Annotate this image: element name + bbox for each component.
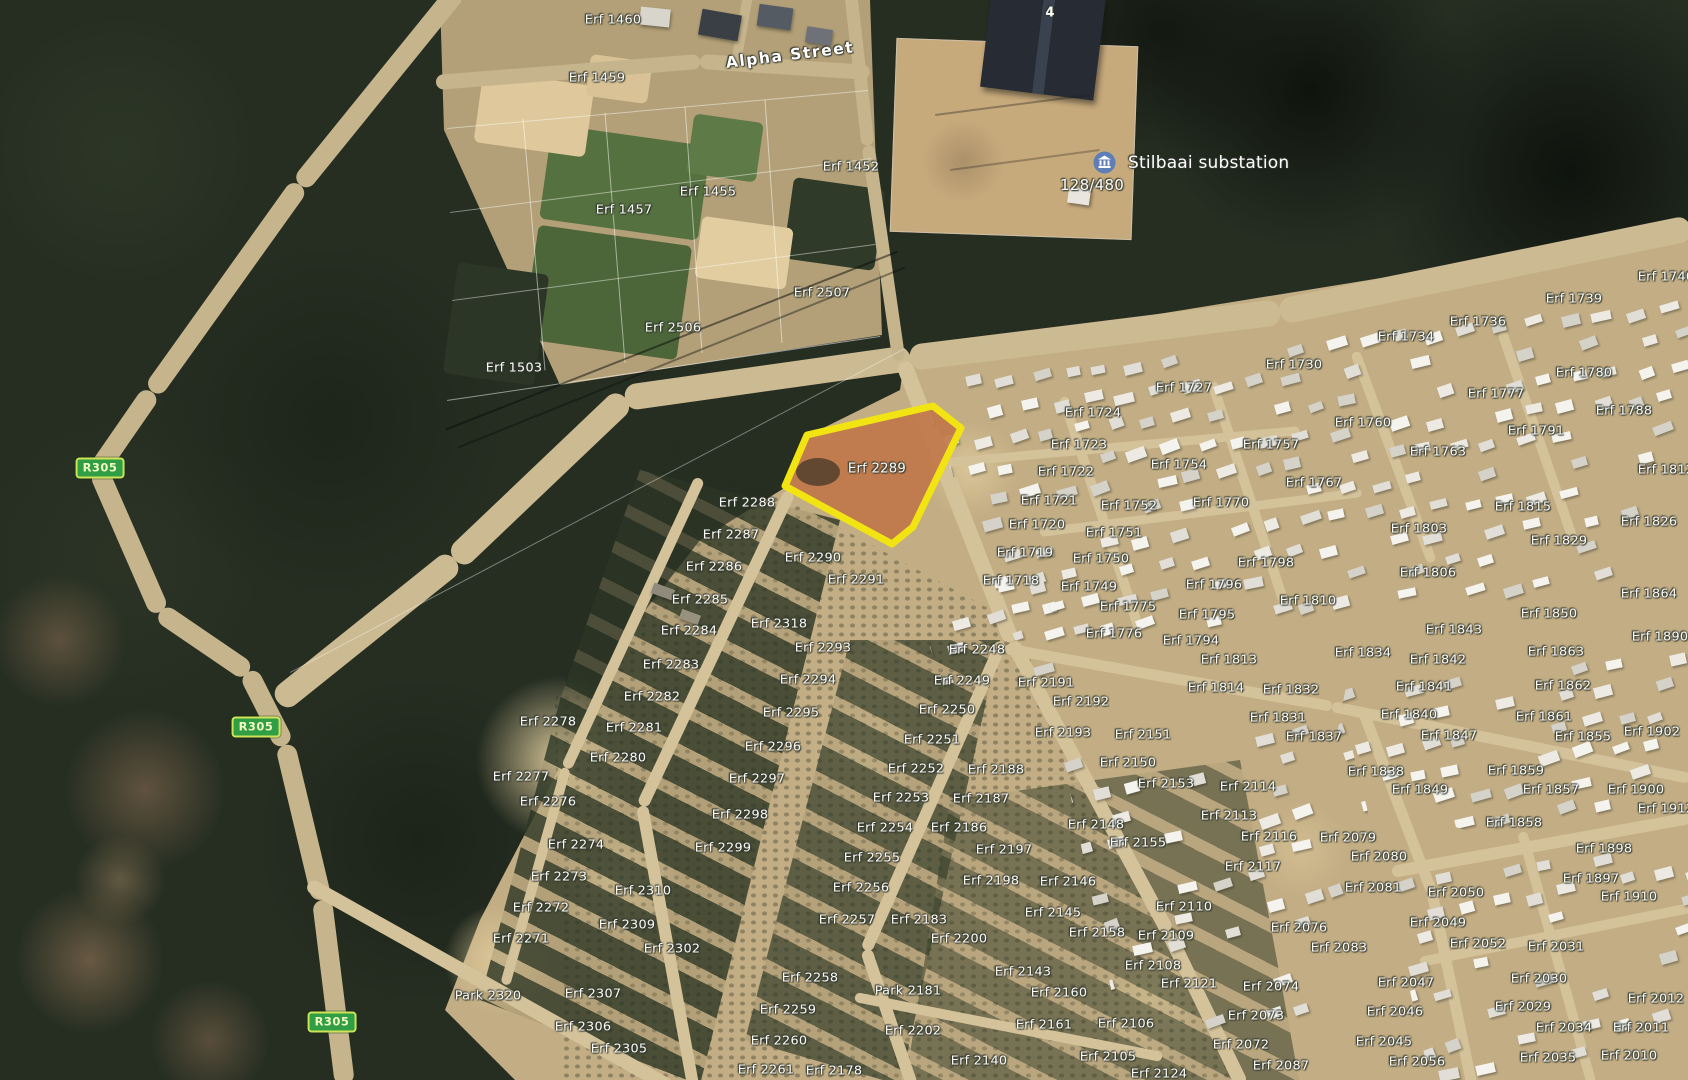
house-roof: [1584, 516, 1599, 528]
house-roof: [1123, 362, 1143, 376]
house-roof: [1676, 922, 1688, 935]
house-roof: [1372, 481, 1392, 494]
house-roof: [952, 617, 971, 631]
house-roof: [1274, 401, 1291, 414]
house-roof: [1465, 583, 1486, 597]
erf-label: Erf 2155: [1110, 836, 1167, 851]
house-roof: [1139, 417, 1155, 430]
erf-label: Erf 2161: [1016, 1018, 1073, 1033]
house-roof: [986, 609, 1005, 624]
erf-label: Erf 2187: [953, 792, 1010, 807]
erf-label: Erf 1826: [1621, 515, 1678, 530]
house-roof: [1476, 1062, 1497, 1076]
house-roof: [1049, 600, 1064, 612]
park-label: Park 2320: [455, 989, 522, 1004]
erf-label: Erf 2299: [695, 841, 752, 856]
erf-label: Erf 1829: [1531, 534, 1588, 549]
house-roof: [1318, 545, 1337, 559]
erf-label: Erf 2150: [1100, 756, 1157, 771]
erf-label: Erf 2050: [1428, 886, 1485, 901]
house-roof: [1652, 421, 1674, 437]
erf-label: Erf 2253: [873, 791, 930, 806]
house-roof: [1158, 557, 1174, 570]
erf-label: Erf 1847: [1421, 729, 1478, 744]
erf-label: Erf 2284: [661, 624, 718, 639]
house-roof: [997, 464, 1013, 476]
erf-label: Erf 2249: [934, 674, 991, 689]
house-roof: [1225, 927, 1241, 939]
house-roof: [1326, 336, 1348, 351]
satellite-map[interactable]: Alpha Street 4 Stilbaai substation 128/4…: [0, 0, 1688, 1080]
erf-label: Erf 2251: [904, 733, 961, 748]
house-roof: [1592, 988, 1609, 1001]
erf-label: Erf 2283: [643, 658, 700, 673]
erf-label: Erf 1898: [1576, 842, 1633, 857]
house-roof: [1579, 336, 1598, 351]
erf-label: Erf 2045: [1356, 1035, 1413, 1050]
house-roof: [1561, 313, 1581, 328]
house-roof: [1495, 408, 1513, 422]
house-roof: [1417, 930, 1434, 944]
erf-label: Erf 1900: [1608, 783, 1665, 798]
erf-label: Erf 2288: [719, 496, 776, 511]
erf-label: Erf 2278: [520, 715, 577, 730]
erf-label: Erf 1806: [1400, 566, 1457, 581]
house-roof: [1594, 799, 1611, 812]
house-roof: [1259, 843, 1275, 856]
house-roof: [1503, 583, 1524, 599]
erf-label: Erf 2151: [1115, 728, 1172, 743]
erf-label: Erf 1813: [1201, 653, 1258, 668]
erf-label: Erf 1452: [823, 160, 880, 175]
erf-label: Erf 1721: [1021, 494, 1078, 509]
erf-label: Erf 2087: [1253, 1059, 1310, 1074]
erf-label: Erf 1775: [1100, 600, 1157, 615]
erf-label: Erf 2200: [931, 932, 988, 947]
erf-label: Erf 1723: [1051, 438, 1108, 453]
erf-label: Erf 2259: [760, 1003, 817, 1018]
erf-label: Erf 2291: [828, 573, 885, 588]
house-roof: [1605, 659, 1622, 671]
erf-label: Erf 2295: [763, 706, 820, 721]
erf-label: Erf 1795: [1179, 608, 1236, 623]
house-roof: [1437, 383, 1455, 398]
erf-label: Erf 1791: [1508, 424, 1565, 439]
erf-label: Erf 2296: [745, 740, 802, 755]
house-roof: [1133, 942, 1154, 956]
house-roof: [1347, 565, 1366, 578]
house-roof: [1389, 416, 1410, 432]
house-roof: [1113, 391, 1134, 405]
house-roof: [1525, 402, 1542, 414]
erf-label: Erf 2052: [1450, 937, 1507, 952]
erf-label: Erf 2248: [949, 643, 1006, 658]
house-roof: [1157, 475, 1178, 488]
house-roof: [1213, 877, 1233, 891]
house-roof: [1263, 517, 1279, 532]
house-roof: [1231, 522, 1250, 537]
erf-label: Erf 2108: [1125, 959, 1182, 974]
house-roof: [1213, 381, 1233, 395]
house-roof: [1328, 883, 1344, 897]
house-roof: [968, 462, 986, 475]
erf-label: Erf 2080: [1351, 850, 1408, 865]
house-roof: [1205, 1014, 1226, 1029]
house-roof: [1009, 429, 1028, 444]
house-roof: [1292, 803, 1314, 820]
house-roof: [1280, 373, 1301, 386]
erf-label: Erf 2145: [1025, 906, 1082, 921]
erf-label: Erf 1459: [569, 71, 626, 86]
house-roof: [1081, 593, 1100, 607]
erf-label: Erf 2287: [703, 528, 760, 543]
erf-label: Erf 1850: [1521, 607, 1578, 622]
erf-label: Erf 2034: [1536, 1021, 1593, 1036]
erf-label: Erf 1862: [1535, 679, 1592, 694]
sand-plot: [694, 216, 794, 290]
erf-label: Erf 1910: [1601, 890, 1658, 905]
erf-label: Erf 2302: [644, 942, 701, 957]
house-roof: [1455, 816, 1475, 829]
erf-label: Erf 2121: [1161, 977, 1218, 992]
highlighted-erf-label[interactable]: Erf 2289: [848, 462, 906, 477]
erf-label: Erf 2277: [493, 770, 550, 785]
erf-label: Erf 1730: [1266, 358, 1323, 373]
erf-label: Erf 2298: [712, 808, 769, 823]
route-shield-r305: R305: [76, 458, 125, 479]
house-roof: [1410, 355, 1430, 369]
house-roof: [1435, 872, 1452, 885]
house-roof: [1351, 450, 1369, 463]
erf-label: Erf 2186: [931, 821, 988, 836]
house-roof: [1085, 390, 1105, 404]
house-roof: [974, 436, 993, 450]
erf-label: Erf 2193: [1035, 726, 1092, 741]
house-roof: [1287, 343, 1305, 357]
house-roof: [1159, 438, 1181, 455]
substation-code-label: 128/480: [1060, 176, 1124, 194]
house-roof: [1174, 913, 1192, 925]
erf-label: Erf 2280: [590, 751, 647, 766]
erf-label: Erf 1455: [680, 185, 737, 200]
erf-label: Erf 2507: [794, 286, 851, 301]
house-roof: [982, 517, 1003, 532]
erf-label: Erf 2310: [615, 884, 672, 899]
house-roof: [1389, 444, 1406, 457]
house-roof: [1582, 712, 1604, 728]
erf-label: Erf 1776: [1086, 627, 1143, 642]
house-roof: [1654, 865, 1674, 880]
house-roof: [1293, 1003, 1309, 1016]
erf-label: Erf 1831: [1250, 711, 1307, 726]
erf-label: Erf 1796: [1186, 578, 1243, 593]
erf-label: Erf 2010: [1601, 1049, 1658, 1064]
house-roof: [1445, 553, 1461, 565]
erf-label: Erf 2282: [624, 690, 681, 705]
house-roof: [994, 375, 1014, 388]
house-roof: [1557, 799, 1576, 814]
erf-label: Erf 2285: [672, 593, 729, 608]
erf-label: Erf 2083: [1311, 941, 1368, 956]
house-roof: [1548, 911, 1563, 923]
house-roof: [1178, 881, 1198, 894]
erf-label: Erf 2258: [782, 971, 839, 986]
erf-label: Erf 1770: [1193, 496, 1250, 511]
house-roof: [1343, 363, 1361, 378]
house-roof: [1571, 456, 1588, 469]
erf-label: Erf 2250: [919, 703, 976, 718]
house-roof: [1483, 524, 1504, 539]
erf-label: Erf 1861: [1516, 710, 1573, 725]
erf-label: Erf 1897: [1563, 872, 1620, 887]
erf-label: Erf 2273: [531, 870, 588, 885]
house-roof: [990, 491, 1007, 504]
house-roof: [1256, 461, 1273, 475]
erf-label: Erf 1849: [1392, 783, 1449, 798]
erf-label: Erf 1767: [1286, 476, 1343, 491]
house-roof: [965, 373, 982, 386]
erf-label: Erf 1503: [486, 361, 543, 376]
erf-label: Erf 2074: [1243, 980, 1300, 995]
erf-label: Erf 2030: [1511, 972, 1568, 987]
erf-label: Erf 2293: [795, 641, 852, 656]
erf-label: Erf 1834: [1335, 646, 1392, 661]
erf-label: Erf 2191: [1018, 676, 1075, 691]
erf-label: Erf 2031: [1528, 940, 1585, 955]
house-roof: [1516, 347, 1534, 362]
house-roof: [1192, 557, 1211, 570]
erf-label: Erf 2202: [885, 1024, 942, 1039]
house-roof: [1639, 366, 1656, 381]
house-roof: [1170, 408, 1192, 424]
erf-label: Erf 2271: [493, 932, 550, 947]
erf-label: Erf 1837: [1286, 730, 1343, 745]
house-roof: [1245, 372, 1263, 387]
house-roof: [1161, 355, 1178, 368]
erf-label: Erf 2281: [606, 721, 663, 736]
house-roof: [1613, 741, 1631, 754]
house-roof: [1405, 471, 1421, 484]
house-roof: [1504, 783, 1524, 799]
erf-label: Erf 2011: [1613, 1021, 1670, 1036]
erf-label: Erf 2188: [968, 763, 1025, 778]
house-roof: [1093, 786, 1111, 800]
house-roof: [1386, 743, 1405, 757]
erf-label: Erf 2072: [1213, 1038, 1270, 1053]
erf-label: Erf 1812: [1638, 463, 1688, 478]
erf-label: Erf 1912: [1638, 802, 1688, 817]
building-roof: [757, 4, 794, 31]
erf-label: Erf 2046: [1367, 1005, 1424, 1020]
house-roof: [987, 405, 1003, 419]
house-roof: [1647, 711, 1663, 724]
substation-name-label[interactable]: Stilbaai substation: [1128, 153, 1289, 173]
substation-poi-icon[interactable]: [1093, 151, 1116, 174]
house-roof: [1660, 301, 1681, 314]
house-roof: [1525, 893, 1543, 907]
house-roof: [1410, 770, 1426, 782]
erf-label: Erf 2076: [1271, 921, 1328, 936]
erf-label: Erf 2305: [591, 1042, 648, 1057]
grass-plot: [523, 225, 692, 360]
erf-label: Erf 2056: [1389, 1055, 1446, 1070]
erf-label: Erf 2261: [738, 1063, 795, 1078]
erf-label: Erf 1864: [1621, 587, 1678, 602]
erf-label: Erf 2309: [599, 918, 656, 933]
erf-label: Erf 2286: [686, 560, 743, 575]
house-roof: [1445, 1038, 1462, 1053]
house-roof: [1465, 499, 1481, 511]
house-roof: [1266, 898, 1284, 912]
erf-label: Erf 2318: [751, 617, 808, 632]
house-roof: [1365, 504, 1384, 518]
erf-label: Erf 1719: [997, 546, 1054, 561]
erf-label: Erf 2306: [555, 1020, 612, 1035]
house-roof: [1355, 741, 1372, 755]
house-roof: [1308, 400, 1324, 413]
house-roof: [1517, 1033, 1535, 1045]
building-roof: [639, 6, 671, 27]
house-roof: [1478, 438, 1495, 452]
erf-label: Erf 2105: [1080, 1050, 1137, 1065]
house-roof: [1300, 510, 1322, 525]
erf-label: Erf 1752: [1101, 499, 1158, 514]
erf-label: Erf 2252: [888, 762, 945, 777]
house-roof: [1594, 567, 1613, 581]
erf-label: Erf 2047: [1378, 976, 1435, 991]
house-roof: [1283, 456, 1301, 470]
erf-label: Erf 1780: [1556, 366, 1613, 381]
route-shield-r305: R305: [232, 717, 281, 738]
house-roof: [1559, 487, 1579, 500]
house-roof: [1493, 892, 1511, 906]
erf-label: Erf 1751: [1086, 526, 1143, 541]
erf-label: Erf 2153: [1138, 777, 1195, 792]
erf-label: Erf 2307: [565, 987, 622, 1002]
erf-label: Erf 1739: [1546, 292, 1603, 307]
erf-label: Erf 2143: [995, 965, 1052, 980]
erf-label: Erf 2148: [1068, 818, 1125, 833]
erf-label: Erf 1815: [1495, 500, 1552, 515]
erf-label: Erf 1855: [1555, 730, 1612, 745]
house-roof: [1064, 757, 1083, 772]
house-roof: [1643, 738, 1659, 751]
erf-label: Erf 1803: [1391, 522, 1448, 537]
erf-label: Erf 2116: [1241, 830, 1298, 845]
house-roof: [1034, 663, 1056, 677]
substation-building-roof: [980, 0, 1106, 101]
erf-label: Erf 2117: [1225, 860, 1282, 875]
house-roof: [1061, 567, 1077, 579]
house-roof: [1676, 325, 1688, 338]
erf-label: Erf 2158: [1069, 926, 1126, 941]
house-roof: [1477, 554, 1494, 567]
erf-label: Erf 1720: [1009, 518, 1066, 533]
erf-label: Erf 1750: [1073, 552, 1130, 567]
erf-label: Erf 1788: [1596, 404, 1653, 419]
house-roof: [1408, 961, 1429, 976]
erf-label: Erf 2124: [1131, 1067, 1188, 1080]
house-roof: [1434, 989, 1453, 1002]
house-roof: [1091, 893, 1109, 905]
erf-label: Erf 1757: [1243, 438, 1300, 453]
house-roof: [1656, 676, 1674, 691]
erf-label: Erf 1838: [1348, 765, 1405, 780]
erf-label: Erf 1777: [1468, 387, 1525, 402]
erf-label: Erf 2183: [891, 913, 948, 928]
house-roof: [1200, 439, 1218, 452]
erf-label: Erf 2294: [780, 673, 837, 688]
house-roof: [1555, 399, 1575, 414]
erf-label: Erf 1842: [1410, 653, 1467, 668]
erf-label: Erf 1794: [1163, 634, 1220, 649]
house-roof: [1090, 480, 1110, 496]
erf-label: Erf 1760: [1335, 416, 1392, 431]
erf-label: Erf 1734: [1378, 330, 1435, 345]
house-roof: [1328, 509, 1345, 521]
erf-label: Erf 2274: [548, 838, 605, 853]
house-roof: [1571, 661, 1588, 674]
erf-label: Erf 2255: [844, 851, 901, 866]
house-roof: [943, 433, 960, 447]
house-roof: [1021, 398, 1039, 412]
house-roof: [1426, 418, 1444, 432]
house-roof: [1590, 310, 1611, 323]
erf-label: Erf 2192: [1053, 695, 1110, 710]
erf-label: Erf 2113: [1201, 809, 1258, 824]
erf-label: Erf 1843: [1426, 623, 1483, 638]
erf-label: Erf 1749: [1061, 580, 1118, 595]
erf-label: Erf 2290: [785, 551, 842, 566]
erf-label: Erf 2506: [645, 321, 702, 336]
house-roof: [1532, 576, 1550, 588]
house-roof: [1656, 389, 1672, 402]
erf-label: Erf 2254: [857, 821, 914, 836]
erf-label: Erf 2276: [520, 795, 577, 810]
erf-label: Erf 1832: [1263, 683, 1320, 698]
house-roof: [1496, 696, 1516, 710]
house-roof: [1259, 813, 1281, 830]
erf-label: Erf 2012: [1628, 992, 1685, 1007]
house-roof: [1669, 652, 1687, 666]
house-roof: [1593, 683, 1613, 698]
erf-label: Erf 2146: [1040, 875, 1097, 890]
erf-label: Erf 1841: [1396, 680, 1453, 695]
erf-label: Erf 2160: [1031, 986, 1088, 1001]
house-roof: [1535, 373, 1551, 386]
erf-label: Erf 2114: [1220, 780, 1277, 795]
erf-label: Erf 1457: [596, 203, 653, 218]
building-number-label: 4: [1045, 6, 1054, 21]
house-roof: [1255, 733, 1275, 747]
erf-label: Erf 2256: [833, 881, 890, 896]
house-roof: [1536, 860, 1551, 871]
house-roof: [1337, 394, 1355, 407]
house-roof: [1503, 863, 1521, 876]
erf-label: Erf 2029: [1495, 1000, 1552, 1015]
erf-label: Erf 1722: [1038, 465, 1095, 480]
erf-label: Erf 1727: [1156, 381, 1213, 396]
house-roof: [1642, 334, 1658, 347]
erf-label: Erf 1736: [1450, 315, 1507, 330]
house-roof: [1626, 308, 1647, 323]
erf-label: Erf 1858: [1486, 816, 1543, 831]
house-roof: [1440, 764, 1459, 777]
house-roof: [1459, 901, 1475, 915]
erf-label: Erf 2272: [513, 901, 570, 916]
erf-label: Erf 1863: [1528, 645, 1585, 660]
park-label: Park 2181: [875, 984, 942, 999]
